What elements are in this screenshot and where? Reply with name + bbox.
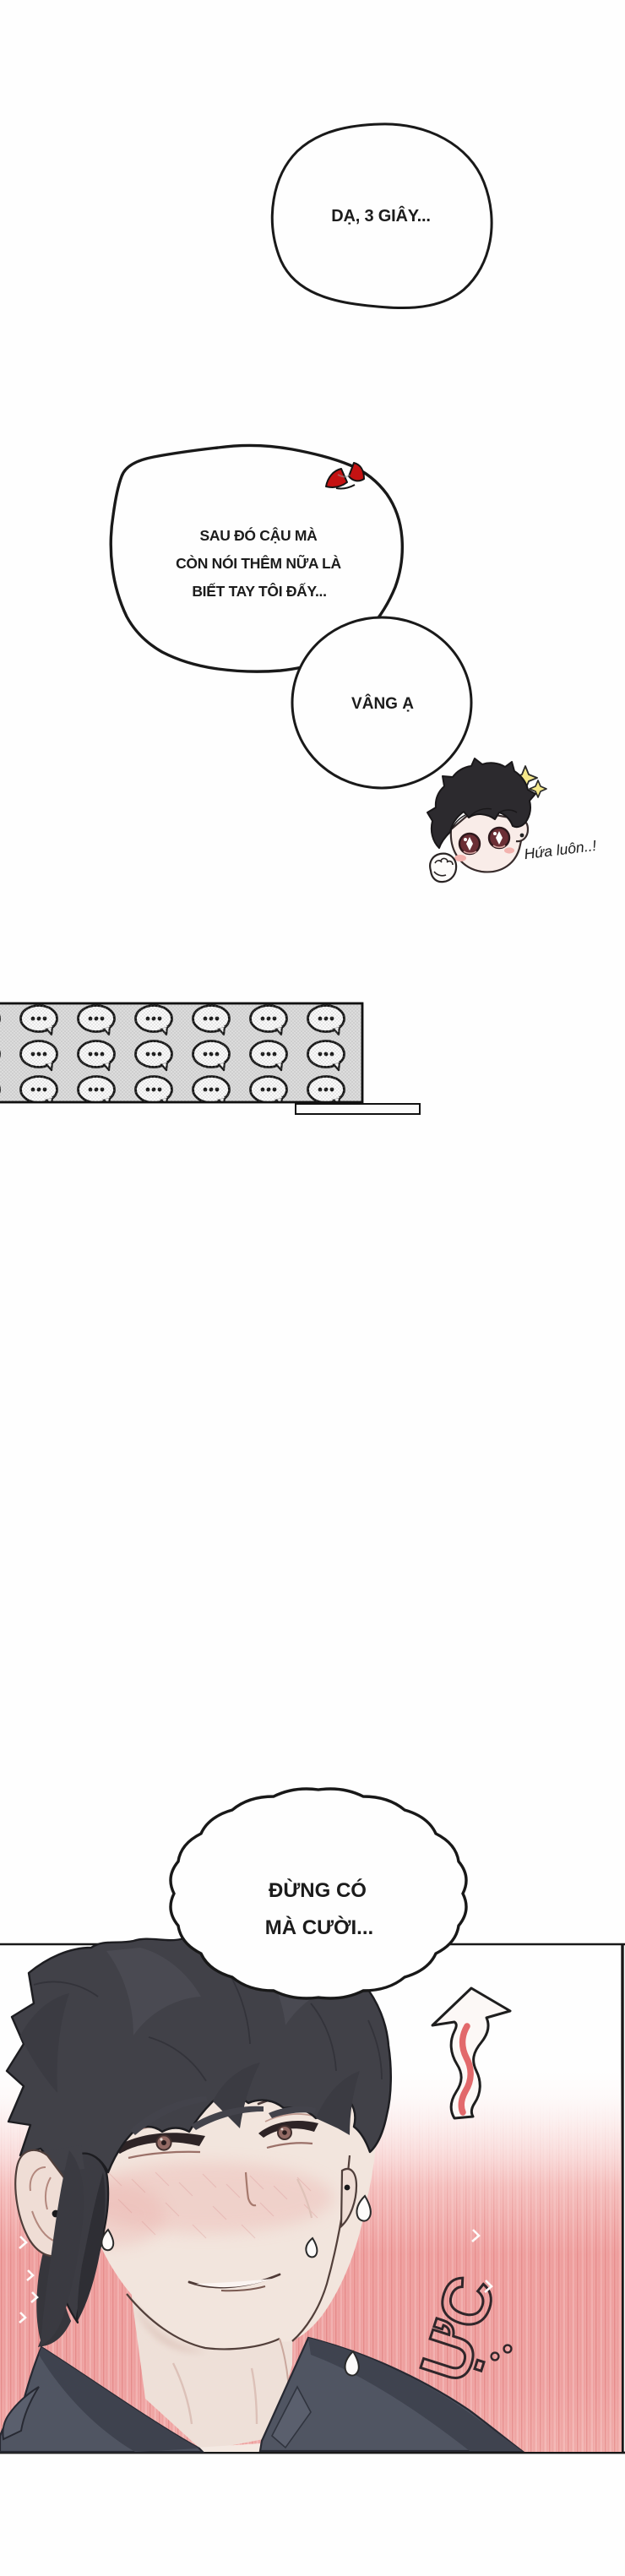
svg-text:BIẾT TAY TÔI ĐẤY...: BIẾT TAY TÔI ĐẤY... bbox=[192, 582, 326, 600]
svg-text:VÂNG Ạ: VÂNG Ạ bbox=[351, 694, 414, 713]
svg-text:DẠ, 3 GIÂY...: DẠ, 3 GIÂY... bbox=[331, 205, 430, 226]
svg-text:CÒN NÓI THÊM NỮA LÀ: CÒN NÓI THÊM NỮA LÀ bbox=[176, 554, 341, 572]
svg-text:MÀ CƯỜI...: MÀ CƯỜI... bbox=[265, 1916, 373, 1939]
svg-text:ĐỪNG CÓ: ĐỪNG CÓ bbox=[269, 1878, 367, 1902]
svg-text:SAU ĐÓ CẬU MÀ: SAU ĐÓ CẬU MÀ bbox=[199, 526, 318, 544]
